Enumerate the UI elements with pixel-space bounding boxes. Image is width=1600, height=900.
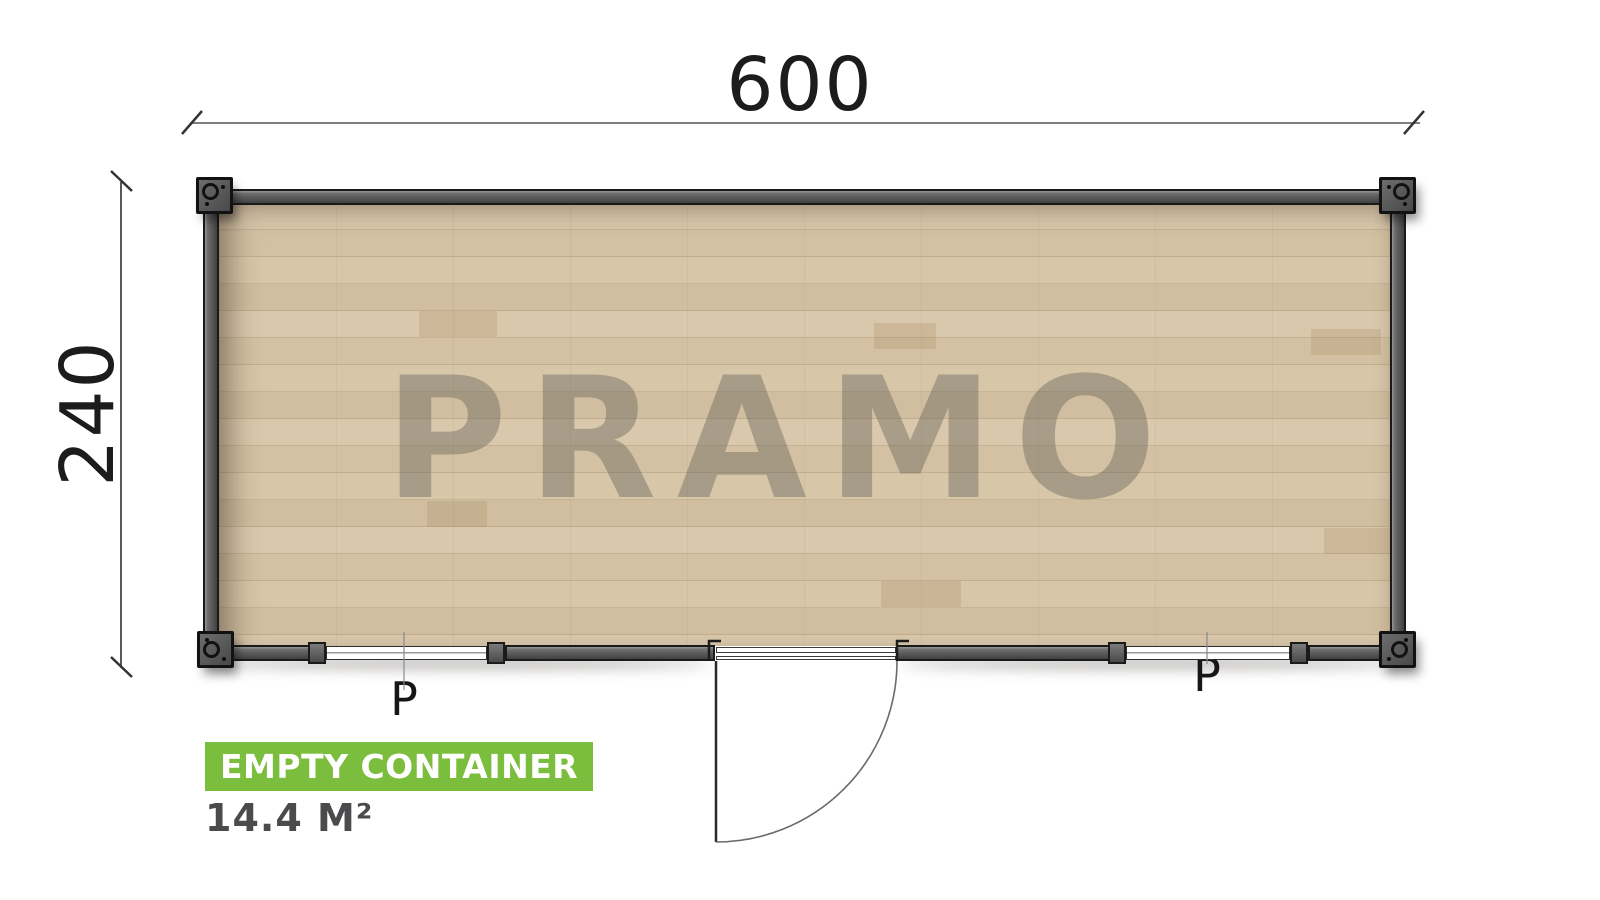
watermark: PRAMO [384, 355, 1177, 523]
corner-bracket-top-left [196, 177, 233, 214]
bolt-dot [1387, 185, 1391, 189]
door-threshold [716, 656, 896, 660]
corner-bracket-bottom-right [1379, 631, 1416, 668]
corner-post-hole [202, 183, 219, 200]
floor-area: PRAMO [219, 203, 1390, 646]
corner-post-hole [1391, 641, 1408, 658]
wood-patch [1324, 528, 1394, 554]
corner-post-hole [1393, 183, 1410, 200]
corner-post-hole [203, 641, 220, 658]
window-jamb [487, 642, 505, 664]
window-1 [326, 646, 487, 660]
wall-right [1390, 196, 1406, 650]
dimension-tick [111, 657, 132, 677]
window-jamb [1290, 642, 1308, 664]
dimension-tick [182, 111, 202, 134]
wood-patch [881, 581, 961, 607]
wood-patch [419, 311, 497, 337]
dimension-tick [111, 171, 132, 191]
wall-top [214, 189, 1388, 205]
window-jamb [308, 642, 326, 664]
bolt-dot [1387, 657, 1391, 661]
bolt-dot [205, 202, 209, 206]
floorplan-canvas: 600 240 PRAMO P P [0, 0, 1600, 900]
bolt-dot [1403, 202, 1407, 206]
wall-bottom-segment [896, 645, 1112, 661]
corner-bracket-bottom-left [197, 631, 234, 668]
height-dimension-label: 240 [13, 338, 163, 488]
wall-bottom-segment [505, 645, 715, 661]
bolt-dot [222, 657, 226, 661]
plan-title-badge: EMPTY CONTAINER [205, 742, 593, 791]
bolt-dot [205, 638, 209, 642]
wood-patch [1311, 329, 1381, 355]
window-jamb [1108, 642, 1126, 664]
corner-bracket-top-right [1379, 177, 1416, 214]
area-value: 14.4 M² [205, 796, 373, 840]
window-2 [1126, 646, 1290, 660]
window-label-1: P [374, 676, 434, 722]
width-dimension-label: 600 [650, 48, 950, 122]
bolt-dot [221, 185, 225, 189]
door-swing-arc [716, 661, 897, 842]
plan-title: EMPTY CONTAINER [220, 747, 578, 786]
bolt-dot [1404, 638, 1408, 642]
door-threshold [716, 647, 896, 653]
wall-left [203, 196, 219, 650]
dimension-tick [1404, 111, 1424, 134]
